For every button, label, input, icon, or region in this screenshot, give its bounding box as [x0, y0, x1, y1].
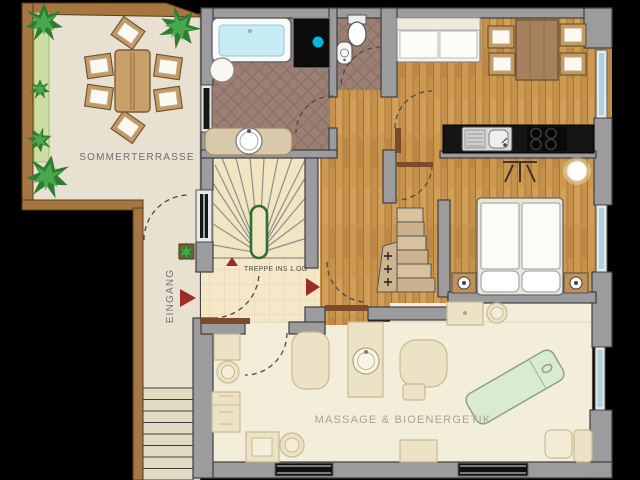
exterior-stairs — [143, 388, 193, 480]
wall-left-3 — [196, 242, 213, 272]
desk-chair — [403, 384, 425, 400]
massage-pillar-desk — [292, 332, 329, 389]
kitchen-counter — [443, 125, 594, 153]
wall-stairhall-east-1 — [305, 158, 318, 268]
terrace-chair — [85, 84, 114, 109]
terrace-chair — [154, 86, 183, 111]
nightstand-right — [564, 273, 588, 293]
dining-chair — [560, 24, 586, 46]
wall-right-1 — [594, 118, 612, 205]
wall-bottom — [201, 462, 612, 478]
bathtub-icon — [212, 18, 291, 62]
massage-bench — [400, 440, 437, 462]
planter-box — [177, 242, 196, 261]
terrace-door-leaf — [200, 318, 250, 324]
sofa-icon — [397, 18, 480, 62]
dining-chair — [560, 53, 586, 75]
deck-edge-corner — [22, 200, 143, 210]
terrace-chair — [85, 53, 114, 78]
dining-chair — [489, 53, 515, 75]
staircase-label: TREPPE INS 1.OG — [244, 266, 307, 273]
massage-armchair — [545, 430, 572, 458]
shower-icon — [293, 18, 330, 68]
floor-lamp-icon — [567, 161, 587, 181]
wall-bedroom-west — [438, 200, 450, 297]
handrail — [251, 206, 267, 258]
dining-chair — [488, 26, 514, 48]
window-right-living — [596, 50, 607, 118]
wall-ne-corner — [584, 8, 612, 48]
window-left-stairhall — [196, 190, 212, 242]
staircase-to-1og: TREPPE INS 1.OG — [213, 158, 307, 273]
wall-hall-massage — [368, 307, 450, 320]
toilet-icon — [348, 15, 366, 46]
wall-left-4 — [193, 318, 213, 478]
double-bed-icon — [477, 198, 563, 295]
massage-wardrobe — [214, 334, 240, 360]
massage-stool-top — [285, 438, 299, 452]
massage-desk — [400, 340, 447, 387]
hall-floor-upper — [330, 90, 397, 158]
massage-side-table — [447, 302, 483, 325]
cooktop-icon — [527, 127, 567, 151]
vanity-sink-icon — [205, 128, 292, 155]
kitchen-sink-icon — [462, 127, 512, 151]
window-right-bedroom — [596, 205, 607, 272]
terrace-label: SOMMERTERRASSE — [79, 152, 195, 163]
bath-stool-icon — [210, 58, 234, 82]
nightstand-left — [452, 273, 476, 293]
window-bottom-1 — [275, 463, 333, 476]
massage-door-leaf — [325, 305, 368, 311]
entrance-label: EINGANG — [165, 269, 176, 324]
massage-shelf — [212, 392, 240, 432]
floor-plan-canvas: SOMMERTERRASSE EINGANG TREPPE INS 1.OG — [0, 0, 640, 480]
massage-seat — [246, 432, 279, 462]
window-left-bath — [201, 85, 212, 132]
massage-corner-seat — [574, 430, 592, 462]
dining-table — [516, 20, 558, 80]
wall-right-2 — [592, 272, 612, 347]
living-door-leaf — [395, 128, 401, 153]
massage-stool-top — [222, 366, 235, 379]
massage-stool-top — [491, 307, 503, 319]
bedroom-door-leaf — [397, 162, 433, 167]
wall-top — [201, 8, 612, 18]
terrace-table — [115, 50, 150, 112]
window-bottom-2 — [458, 463, 528, 476]
deck-edge-walkway — [133, 208, 143, 480]
hand-sink-icon — [337, 42, 352, 64]
wall-hall-corridor — [383, 150, 396, 203]
wall-wc-living — [381, 8, 397, 97]
floor-plan-drawing: SOMMERTERRASSE EINGANG TREPPE INS 1.OG — [0, 0, 640, 480]
massage-room-label: MASSAGE & BIOENERGETIK — [315, 414, 492, 426]
massage-wash-basin — [348, 322, 383, 397]
terrace-chair — [154, 54, 183, 79]
window-right-massage — [595, 347, 605, 410]
